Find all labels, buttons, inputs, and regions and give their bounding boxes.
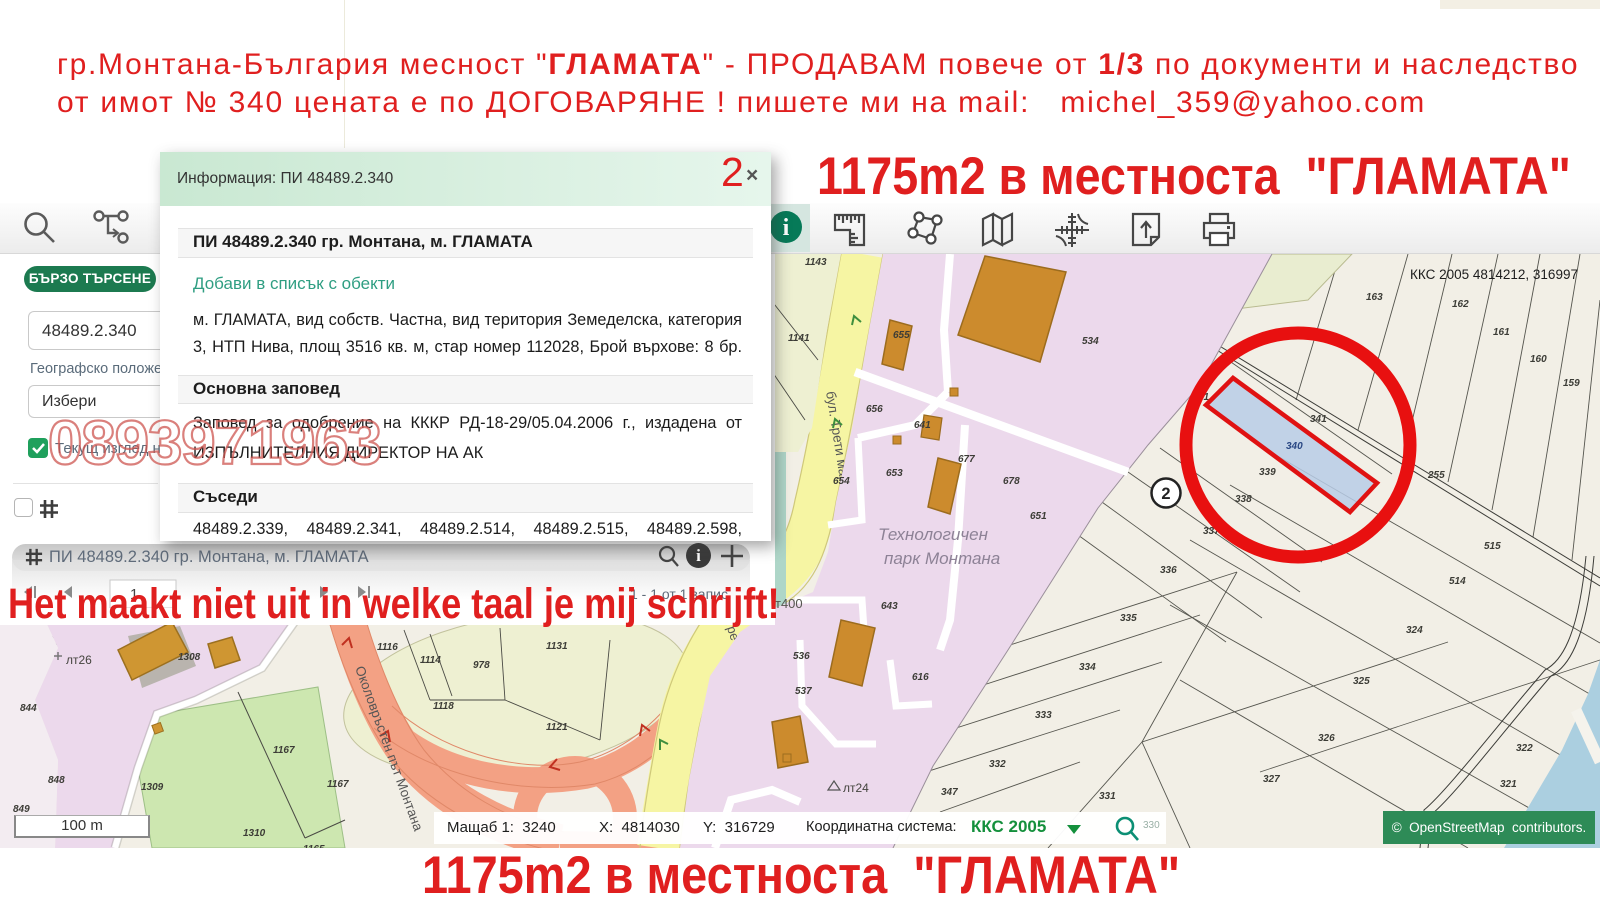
svg-text:161: 161	[1493, 327, 1510, 338]
svg-text:678: 678	[1003, 476, 1020, 487]
svg-text:1118: 1118	[433, 701, 454, 712]
svg-text:651: 651	[1030, 511, 1047, 522]
svg-text:i: i	[783, 215, 790, 241]
svg-text:1141: 1141	[788, 333, 810, 344]
svg-text:338: 338	[1235, 494, 1252, 505]
svg-text:334: 334	[1079, 662, 1096, 673]
svg-text:ККС 2005 4814212, 316997: ККС 2005 4814212, 316997	[1410, 267, 1578, 282]
svg-text:340: 340	[1286, 441, 1303, 452]
svg-text:332: 332	[989, 759, 1006, 770]
svg-text:1310: 1310	[243, 828, 266, 839]
svg-text:лт26: лт26	[66, 653, 92, 667]
svg-text:321: 321	[1500, 779, 1517, 790]
svg-text:534: 534	[1082, 336, 1099, 347]
svg-text:159: 159	[1563, 378, 1580, 389]
svg-text:641: 641	[914, 420, 931, 431]
svg-text:656: 656	[866, 404, 883, 415]
svg-text:1308: 1308	[178, 652, 201, 663]
svg-text:322: 322	[1516, 743, 1533, 754]
svg-text:653: 653	[886, 468, 903, 479]
svg-text:парк Монтана: парк Монтана	[884, 549, 1000, 568]
svg-text:536: 536	[793, 651, 810, 662]
svg-text:844: 844	[20, 703, 37, 714]
svg-text:331: 331	[1099, 791, 1116, 802]
svg-text:514: 514	[1449, 576, 1466, 587]
svg-text:255: 255	[1427, 470, 1445, 481]
svg-text:654: 654	[833, 476, 850, 487]
svg-text:341: 341	[1310, 414, 1327, 425]
svg-text:848: 848	[48, 775, 65, 786]
svg-text:677: 677	[958, 454, 975, 465]
svg-text:333: 333	[1035, 710, 1052, 721]
svg-text:163: 163	[1366, 292, 1383, 303]
svg-text:2: 2	[1161, 485, 1170, 503]
svg-text:1309: 1309	[141, 782, 164, 793]
svg-text:537: 537	[795, 686, 812, 697]
svg-text:347: 347	[941, 787, 958, 798]
svg-text:1121: 1121	[546, 722, 568, 733]
svg-text:643: 643	[881, 601, 898, 612]
svg-text:326: 326	[1318, 733, 1335, 744]
svg-text:162: 162	[1452, 299, 1469, 310]
svg-text:1167: 1167	[327, 779, 349, 790]
svg-text:339: 339	[1259, 467, 1276, 478]
svg-text:160: 160	[1530, 354, 1547, 365]
svg-text:1116: 1116	[377, 642, 398, 653]
svg-text:лт24: лт24	[843, 781, 869, 795]
svg-text:515: 515	[1484, 541, 1501, 552]
svg-text:978: 978	[473, 660, 490, 671]
svg-text:1114: 1114	[420, 655, 441, 666]
svg-text:324: 324	[1406, 625, 1423, 636]
svg-text:1167: 1167	[273, 745, 295, 756]
svg-text:Технологичен: Технологичен	[878, 525, 989, 544]
svg-text:1131: 1131	[546, 641, 568, 652]
svg-text:616: 616	[912, 672, 929, 683]
svg-text:327: 327	[1263, 774, 1280, 785]
svg-text:325: 325	[1353, 676, 1370, 687]
svg-text:849: 849	[13, 804, 30, 815]
svg-text:1143: 1143	[805, 257, 827, 268]
svg-text:335: 335	[1120, 613, 1137, 624]
svg-text:336: 336	[1160, 565, 1177, 576]
svg-text:655: 655	[893, 330, 910, 341]
